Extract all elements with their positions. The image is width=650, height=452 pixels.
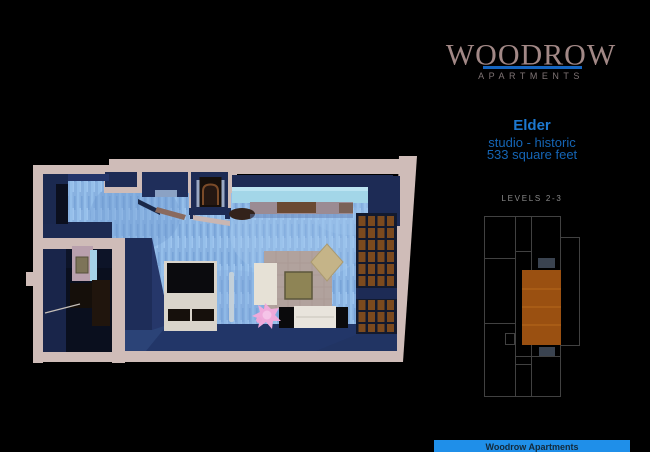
svg-text:533 square feet: 533 square feet bbox=[487, 147, 578, 162]
svg-text:Elder: Elder bbox=[513, 117, 551, 134]
svg-text:LEVELS 2-3: LEVELS 2-3 bbox=[501, 194, 562, 203]
svg-text:APARTMENTS: APARTMENTS bbox=[478, 71, 584, 81]
svg-text:Woodrow Apartments: Woodrow Apartments bbox=[485, 442, 578, 452]
